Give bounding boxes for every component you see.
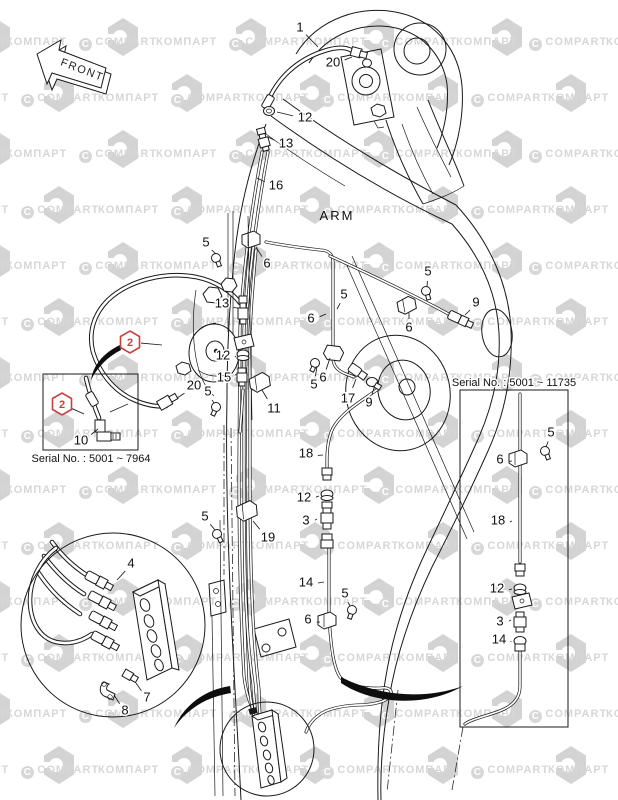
part-label-9: 9 <box>365 395 372 410</box>
leader-line <box>465 310 470 315</box>
front-direction-arrow: FRONT <box>37 40 111 94</box>
leader-line <box>306 35 318 47</box>
part-label-8: 8 <box>121 703 128 718</box>
branch-riser <box>266 242 333 352</box>
part-label-12: 12 <box>298 110 312 125</box>
arm-label: ARM <box>320 208 355 223</box>
part-label-12: 12 <box>297 490 311 505</box>
parts-diagram-page: КОМПАРТ CCOMPARTКОМПАРТ CCOMPARTКОМПАРТ … <box>0 0 618 800</box>
leader-line <box>546 442 548 447</box>
circle-hose-3 <box>38 572 80 614</box>
part-label-6: 6 <box>496 452 503 467</box>
part-label-6: 6 <box>263 256 270 271</box>
part-label-9: 9 <box>472 295 479 310</box>
ref-marker-number: 2 <box>59 399 65 411</box>
part-label-14: 14 <box>299 575 313 590</box>
leader-line <box>136 683 141 691</box>
diagram-canvas: FRONT ARM Serial No. : 5001 ~ 7964Serial… <box>0 0 618 800</box>
leader-line <box>235 356 236 357</box>
part-label-11: 11 <box>267 401 281 416</box>
boom-end-structure <box>296 10 464 204</box>
hose-1-inner <box>267 48 355 104</box>
pipe-14 <box>306 548 391 732</box>
leader-line <box>212 250 216 254</box>
leader-line <box>117 571 125 580</box>
part-label-6: 6 <box>319 370 326 385</box>
leader-line <box>348 602 350 606</box>
part-label-20: 20 <box>326 55 340 70</box>
leader-line <box>212 400 214 403</box>
marker-leader <box>72 409 84 414</box>
part-label-5: 5 <box>204 384 211 399</box>
zoom-arrow-right <box>341 677 463 701</box>
part-label-1: 1 <box>296 20 303 35</box>
part-8-elbow <box>100 682 115 700</box>
part-label-18: 18 <box>491 513 505 528</box>
part-label-18: 18 <box>299 446 313 461</box>
part-label-15: 15 <box>217 370 231 385</box>
leader-line <box>509 620 511 621</box>
part-10-elbow <box>95 420 120 441</box>
part-label-6: 6 <box>307 311 314 326</box>
leader-line <box>262 390 267 399</box>
leader-line <box>337 303 340 309</box>
part-label-17: 17 <box>341 391 355 406</box>
inset-box-right <box>460 390 568 727</box>
leader-line <box>509 589 512 590</box>
part-label-3: 3 <box>496 614 503 629</box>
serial-number-note: Serial No. : 5001 ~ 11735 <box>452 377 576 389</box>
leader-line <box>277 112 293 116</box>
leader-line <box>315 519 317 520</box>
leader-line <box>316 496 319 497</box>
part-label-5: 5 <box>202 235 209 250</box>
part-label-4: 4 <box>127 556 134 571</box>
part-label-16: 16 <box>269 178 283 193</box>
leader-line <box>345 57 352 60</box>
part-label-10: 10 <box>74 433 88 448</box>
leader-line <box>114 695 120 704</box>
part-label-20: 20 <box>187 378 201 393</box>
leader-line <box>510 521 512 522</box>
part-label-5: 5 <box>310 377 317 392</box>
part-label-12: 12 <box>216 348 230 363</box>
leader-line <box>210 524 215 530</box>
part-label-13: 13 <box>215 296 229 311</box>
part-label-5: 5 <box>340 287 347 302</box>
part-label-5: 5 <box>424 264 431 279</box>
marker-leader <box>141 343 162 345</box>
leader-line <box>320 314 326 317</box>
part-label-5: 5 <box>341 586 348 601</box>
part-label-12: 12 <box>490 581 504 596</box>
part-label-5: 5 <box>547 425 554 440</box>
leader-line <box>353 379 356 388</box>
part-label-19: 19 <box>261 530 275 545</box>
ref-marker-number: 2 <box>127 337 133 349</box>
part-label-14: 14 <box>492 632 506 647</box>
leader-line <box>253 521 260 529</box>
branch-riser-inner <box>266 242 333 352</box>
part-label-7: 7 <box>143 690 150 705</box>
part-label-13: 13 <box>279 136 293 151</box>
leader-line <box>318 582 324 583</box>
fittings <box>157 47 475 760</box>
box2-pipe-lower-inner <box>465 650 520 724</box>
serial-number-note: Serial No. : 5001 ~ 7964 <box>32 453 151 465</box>
part-label-6: 6 <box>405 320 412 335</box>
detail-circle-block <box>220 702 314 796</box>
part-label-5: 5 <box>201 509 208 524</box>
part-label-6: 6 <box>304 612 311 627</box>
part-label-3: 3 <box>302 513 309 528</box>
leader-line <box>177 393 184 398</box>
